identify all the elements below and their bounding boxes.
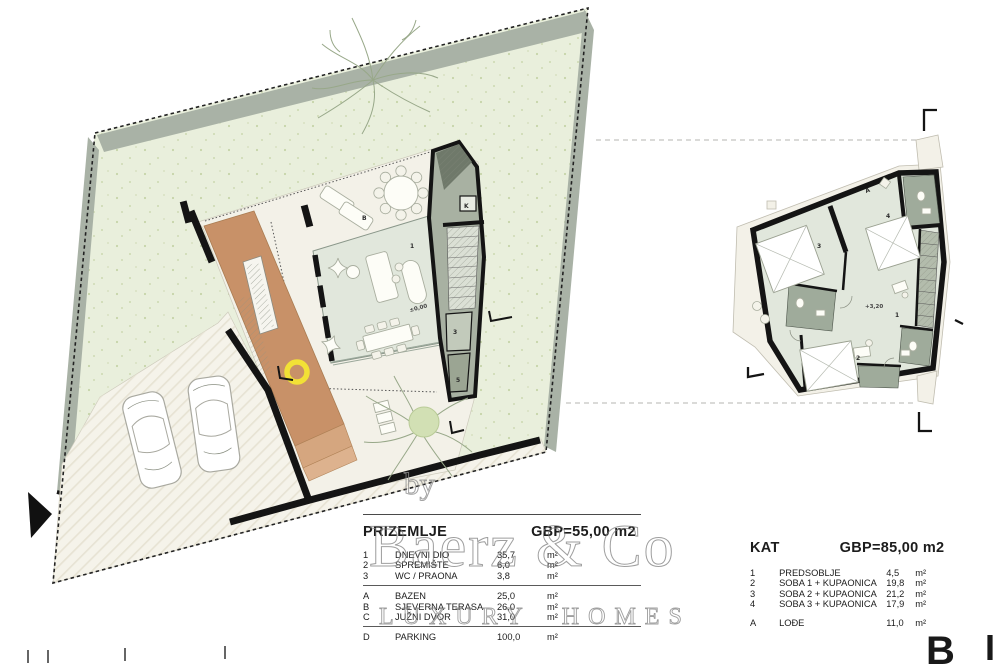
legend-row: 3 WC / PRAONA 3,8 m²: [363, 571, 641, 581]
architectural-drawing-sheet: B 1 3 5 K ±0,00: [0, 0, 1000, 667]
legend-row: C JUŽNI DVOR 31,0 m²: [363, 612, 641, 622]
legend-row: 3 SOBA 2 + KUPAONICA 21,2 m²: [750, 589, 948, 599]
room3-label: 3: [817, 243, 821, 250]
level-label-kat: +3,20: [865, 304, 883, 310]
legend-title: PRIZEMLJE: [363, 524, 447, 540]
floor-plan-kat: A 3 4 1 2 +3,20: [733, 135, 950, 404]
kitchen-label: K: [464, 203, 469, 210]
legend-row: 2 SPREMIŠTE 6,0 m²: [363, 560, 641, 570]
site-plan-ground-floor: B 1 3 5 K ±0,00: [53, 8, 594, 583]
legend-upper-floor: KAT GBP=85,00 m2 1 PREDSOBLJE 4,5 m² 2 S…: [750, 531, 948, 628]
legend-heading: KAT GBP=85,00 m2: [750, 540, 948, 556]
legend-heading: PRIZEMLJE GBP=55,00 m2: [363, 524, 641, 540]
hall-label: 1: [895, 312, 899, 319]
wc-room: [446, 312, 472, 351]
legend-title: KAT: [750, 540, 780, 556]
living-label: 1: [410, 243, 414, 250]
cropped-letter-b: B: [926, 629, 955, 667]
scale-bar: [28, 646, 225, 663]
store-room: [448, 353, 470, 392]
round-dining-table: [374, 166, 428, 220]
legend-row: 1 PREDSOBLJE 4,5 m²: [750, 568, 948, 578]
legend-row: A BAZEN 25,0 m²: [363, 591, 641, 601]
legend-row: 2 SOBA 1 + KUPAONICA 19,8 m²: [750, 578, 948, 588]
legend-gbp: GBP=85,00 m2: [840, 540, 945, 556]
store-label: 5: [456, 377, 460, 384]
legend-row: B SJEVERNA TERASA 26,0 m²: [363, 602, 641, 612]
room2-label: 2: [856, 355, 860, 362]
legend-row: 4 SOBA 3 + KUPAONICA 17,9 m²: [750, 599, 948, 609]
wc-label: 3: [453, 329, 457, 336]
divider: [363, 514, 641, 515]
room4-label: 4: [886, 213, 890, 220]
legend-row: 1 DNEVNI DIO 35,7 m²: [363, 550, 641, 560]
stairs-ground: [447, 226, 479, 310]
north-arrow-icon: [28, 492, 52, 538]
bed: [800, 341, 859, 391]
legend-row: D PARKING 100,0 m²: [363, 632, 641, 642]
cropped-letter-i: I: [985, 627, 995, 667]
terrace-label: B: [362, 215, 367, 222]
legend-row: A LOĐE 11,0 m²: [750, 618, 948, 628]
divider: [363, 626, 641, 627]
legend-ground-floor: PRIZEMLJE GBP=55,00 m2 1 DNEVNI DIO 35,7…: [363, 514, 641, 643]
legend-gbp: GBP=55,00 m2: [531, 524, 636, 540]
divider: [363, 585, 641, 586]
